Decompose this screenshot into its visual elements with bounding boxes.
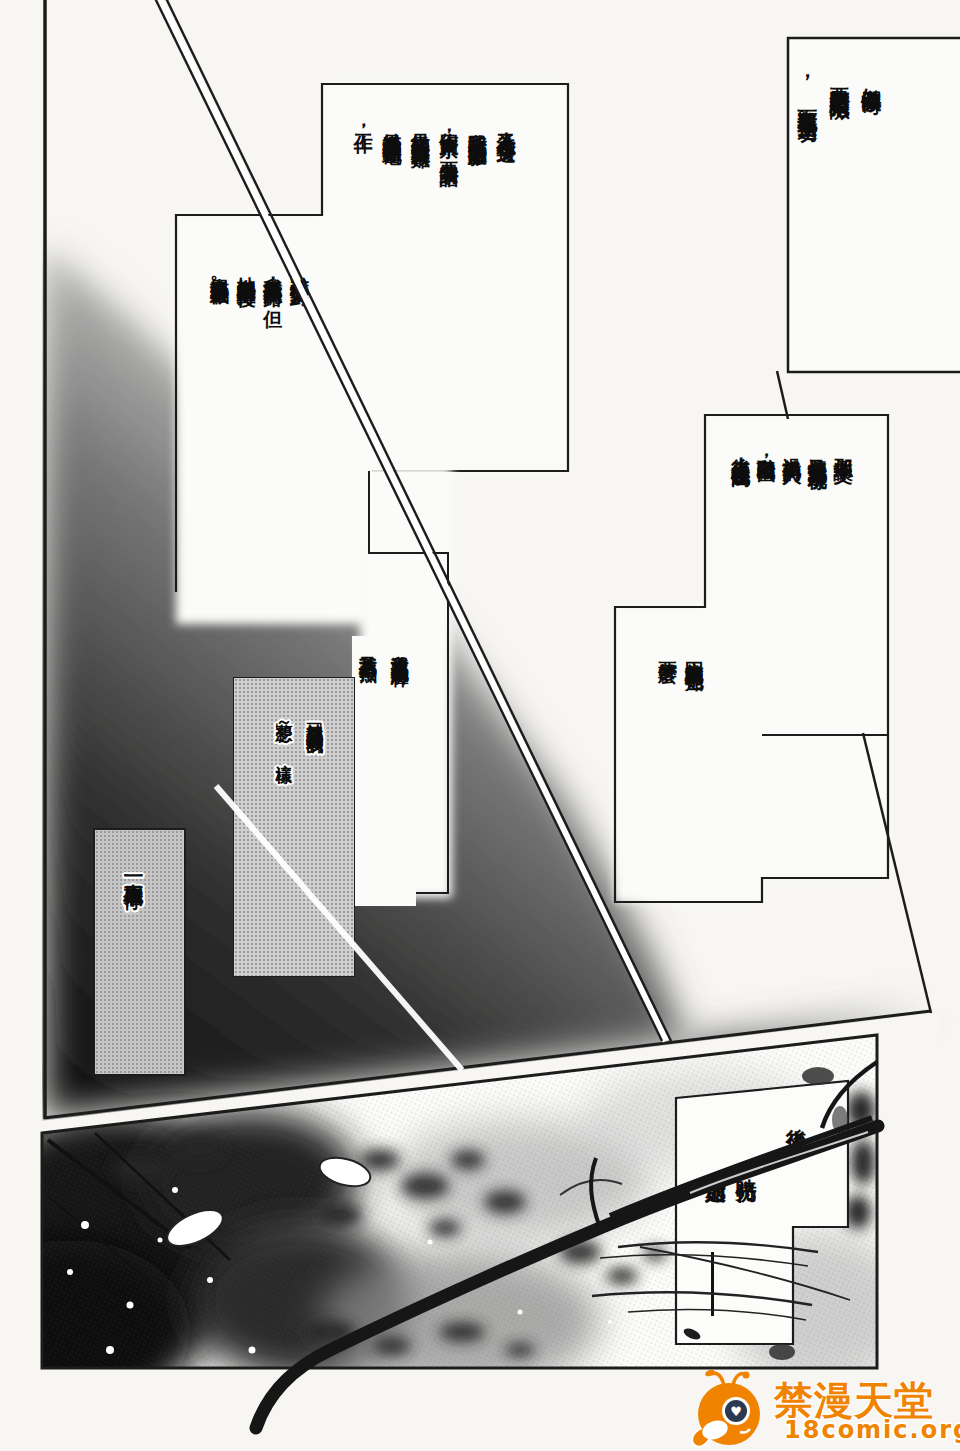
text-column: 也哭著跟我道歉。 [207, 262, 234, 607]
text-column: 她知道我的堅持後 [234, 262, 261, 607]
text-column: 結果還是靠關係在當地 [379, 118, 408, 478]
toned-box-dream-ruined-text: 她就哭說是「她毀了我的 夢想」～～這樣 [269, 710, 330, 970]
manga-page: 知道懷孕時 要墮胎已經太危險 ，而我也接受了這一切。 為了待在小文身邊， 我辭了… [0, 0, 960, 1451]
narration-box-that-man: 那個讓小文 懷孕把她當玩具那樣玩 過就扔的男人 辭職出了國， 後來怎樣我也沒問， [728, 443, 856, 733]
text-column: 飛逝如 [700, 1162, 730, 1342]
text-column: 一直哭個不停… [120, 866, 148, 1066]
heart-icon: ♥ [730, 1404, 742, 1419]
text-column: 我還沒來不及跟她解釋 [384, 636, 416, 906]
narration-box-tokyo-work: 為了待在小文身邊， 我辭了大阪那邊的攝影工 作回來東京，要養家的話 只靠拍照的收… [350, 118, 521, 478]
text-column: 工作， [350, 118, 379, 478]
text-column: 我走攝影以外的路，但 [260, 262, 287, 607]
text-column: 時光仍 [730, 1162, 760, 1342]
text-column: 我辭了大阪那邊的攝影工 [464, 118, 493, 478]
text-column: 過就扔的男人 [779, 443, 805, 733]
text-column: 雖然小文很反對 [287, 262, 314, 607]
watermark: ♥ 禁漫天堂 18comic.org [688, 1366, 938, 1450]
narration-box-objection: 雖然小文很反對 我走攝影以外的路，但 她知道我的堅持後 也哭著跟我道歉。 [207, 262, 313, 607]
text-column: 那個讓小文 [831, 443, 857, 733]
toned-box-crying-text: 一直哭個不停… [120, 866, 148, 1066]
text-column: 知道懷孕時 [856, 72, 888, 372]
text-column: 後來怎樣我也沒問， [728, 443, 754, 733]
text-column: 要墮胎已經太危險 [824, 72, 856, 372]
text-column: 因為就算問了也不知 [682, 646, 709, 906]
text-column: ，而我也接受了這一切。 [792, 72, 824, 372]
narration-box-pregnancy: 知道懷孕時 要墮胎已經太危險 ，而我也接受了這一切。 [792, 72, 888, 372]
narration-box-no-time-to-explain: 我還沒來不及跟她解釋 我又不是不再拍照 [352, 636, 416, 906]
text-column: 作回來東京，要養家的話 [436, 118, 465, 478]
text-column: 她就哭說是「她毀了我的 [300, 710, 331, 970]
text-column: 要幹麼… [655, 646, 682, 906]
text-column: 我又不是不再拍照 [352, 636, 384, 906]
watermark-site-url: 18comic.org [784, 1416, 960, 1444]
whale-mascot-icon: ♥ [688, 1366, 768, 1450]
text-column: 夢想」～～這樣 [269, 710, 300, 970]
text-column: 為了待在小文身邊， [493, 118, 522, 478]
text-column: 後來 [781, 1112, 811, 1342]
caption-box-timeskip: 後來 時光仍 飛逝如 [700, 1112, 811, 1342]
long-dash-mark [711, 1252, 714, 1316]
narration-box-no-point-asking: 因為就算問了也不知 要幹麼… [655, 646, 708, 906]
text-column: 辭職出了國， [754, 443, 780, 733]
text-column: 只靠拍照的收入實在很難， [407, 118, 436, 478]
text-column: 懷孕把她當玩具那樣玩 [805, 443, 831, 733]
